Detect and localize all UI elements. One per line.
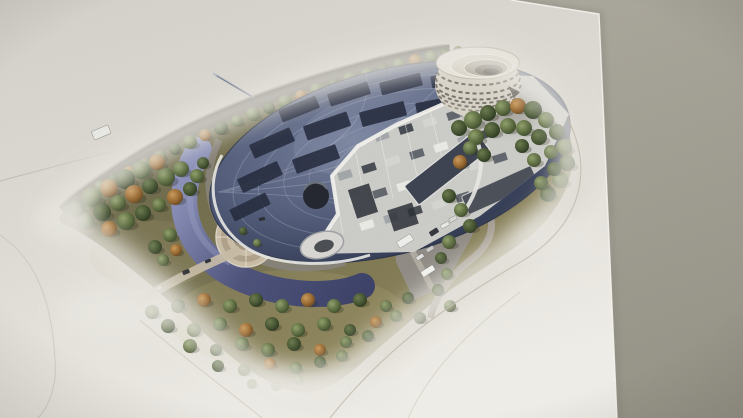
photo-of-printed-rendering	[0, 0, 743, 418]
grain-overlay	[0, 0, 743, 418]
